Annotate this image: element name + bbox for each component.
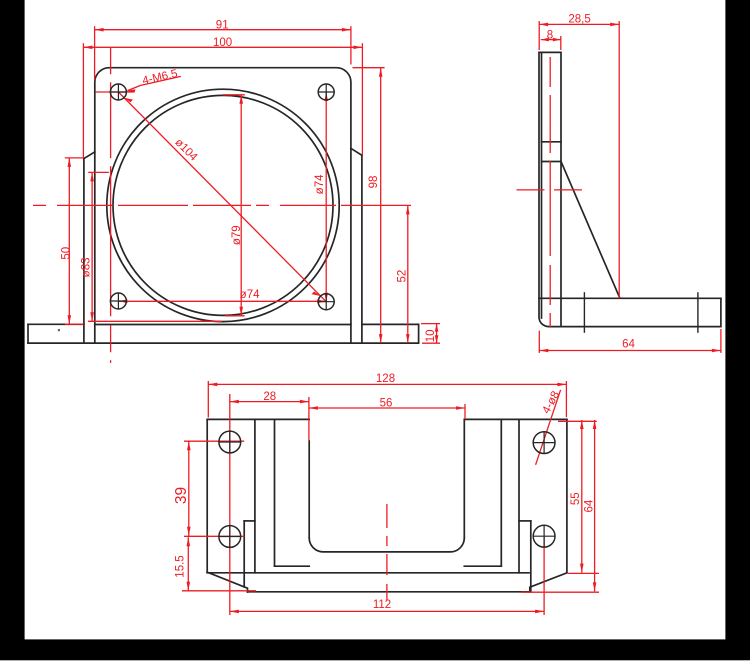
svg-text:10: 10	[425, 330, 437, 343]
svg-text:98: 98	[368, 176, 380, 189]
svg-text:91: 91	[216, 20, 229, 32]
svg-text:50: 50	[60, 247, 72, 260]
svg-text:52: 52	[397, 270, 409, 283]
svg-text:ø83: ø83	[80, 257, 92, 277]
svg-text:55: 55	[570, 492, 582, 505]
svg-text:28,5: 28,5	[568, 14, 590, 26]
svg-text:112: 112	[373, 599, 391, 611]
svg-text:8: 8	[547, 29, 553, 41]
svg-text:56: 56	[380, 398, 393, 410]
svg-text:ø74: ø74	[240, 289, 260, 301]
svg-text:128: 128	[376, 373, 395, 385]
svg-text:15.5: 15.5	[175, 555, 187, 577]
svg-text:64: 64	[622, 338, 635, 350]
svg-text:64: 64	[584, 499, 596, 512]
svg-text:28: 28	[263, 391, 276, 403]
svg-text:ø79: ø79	[231, 225, 243, 245]
svg-text:100: 100	[213, 37, 232, 49]
svg-text:ø74: ø74	[314, 174, 326, 194]
svg-text:39: 39	[173, 487, 190, 504]
